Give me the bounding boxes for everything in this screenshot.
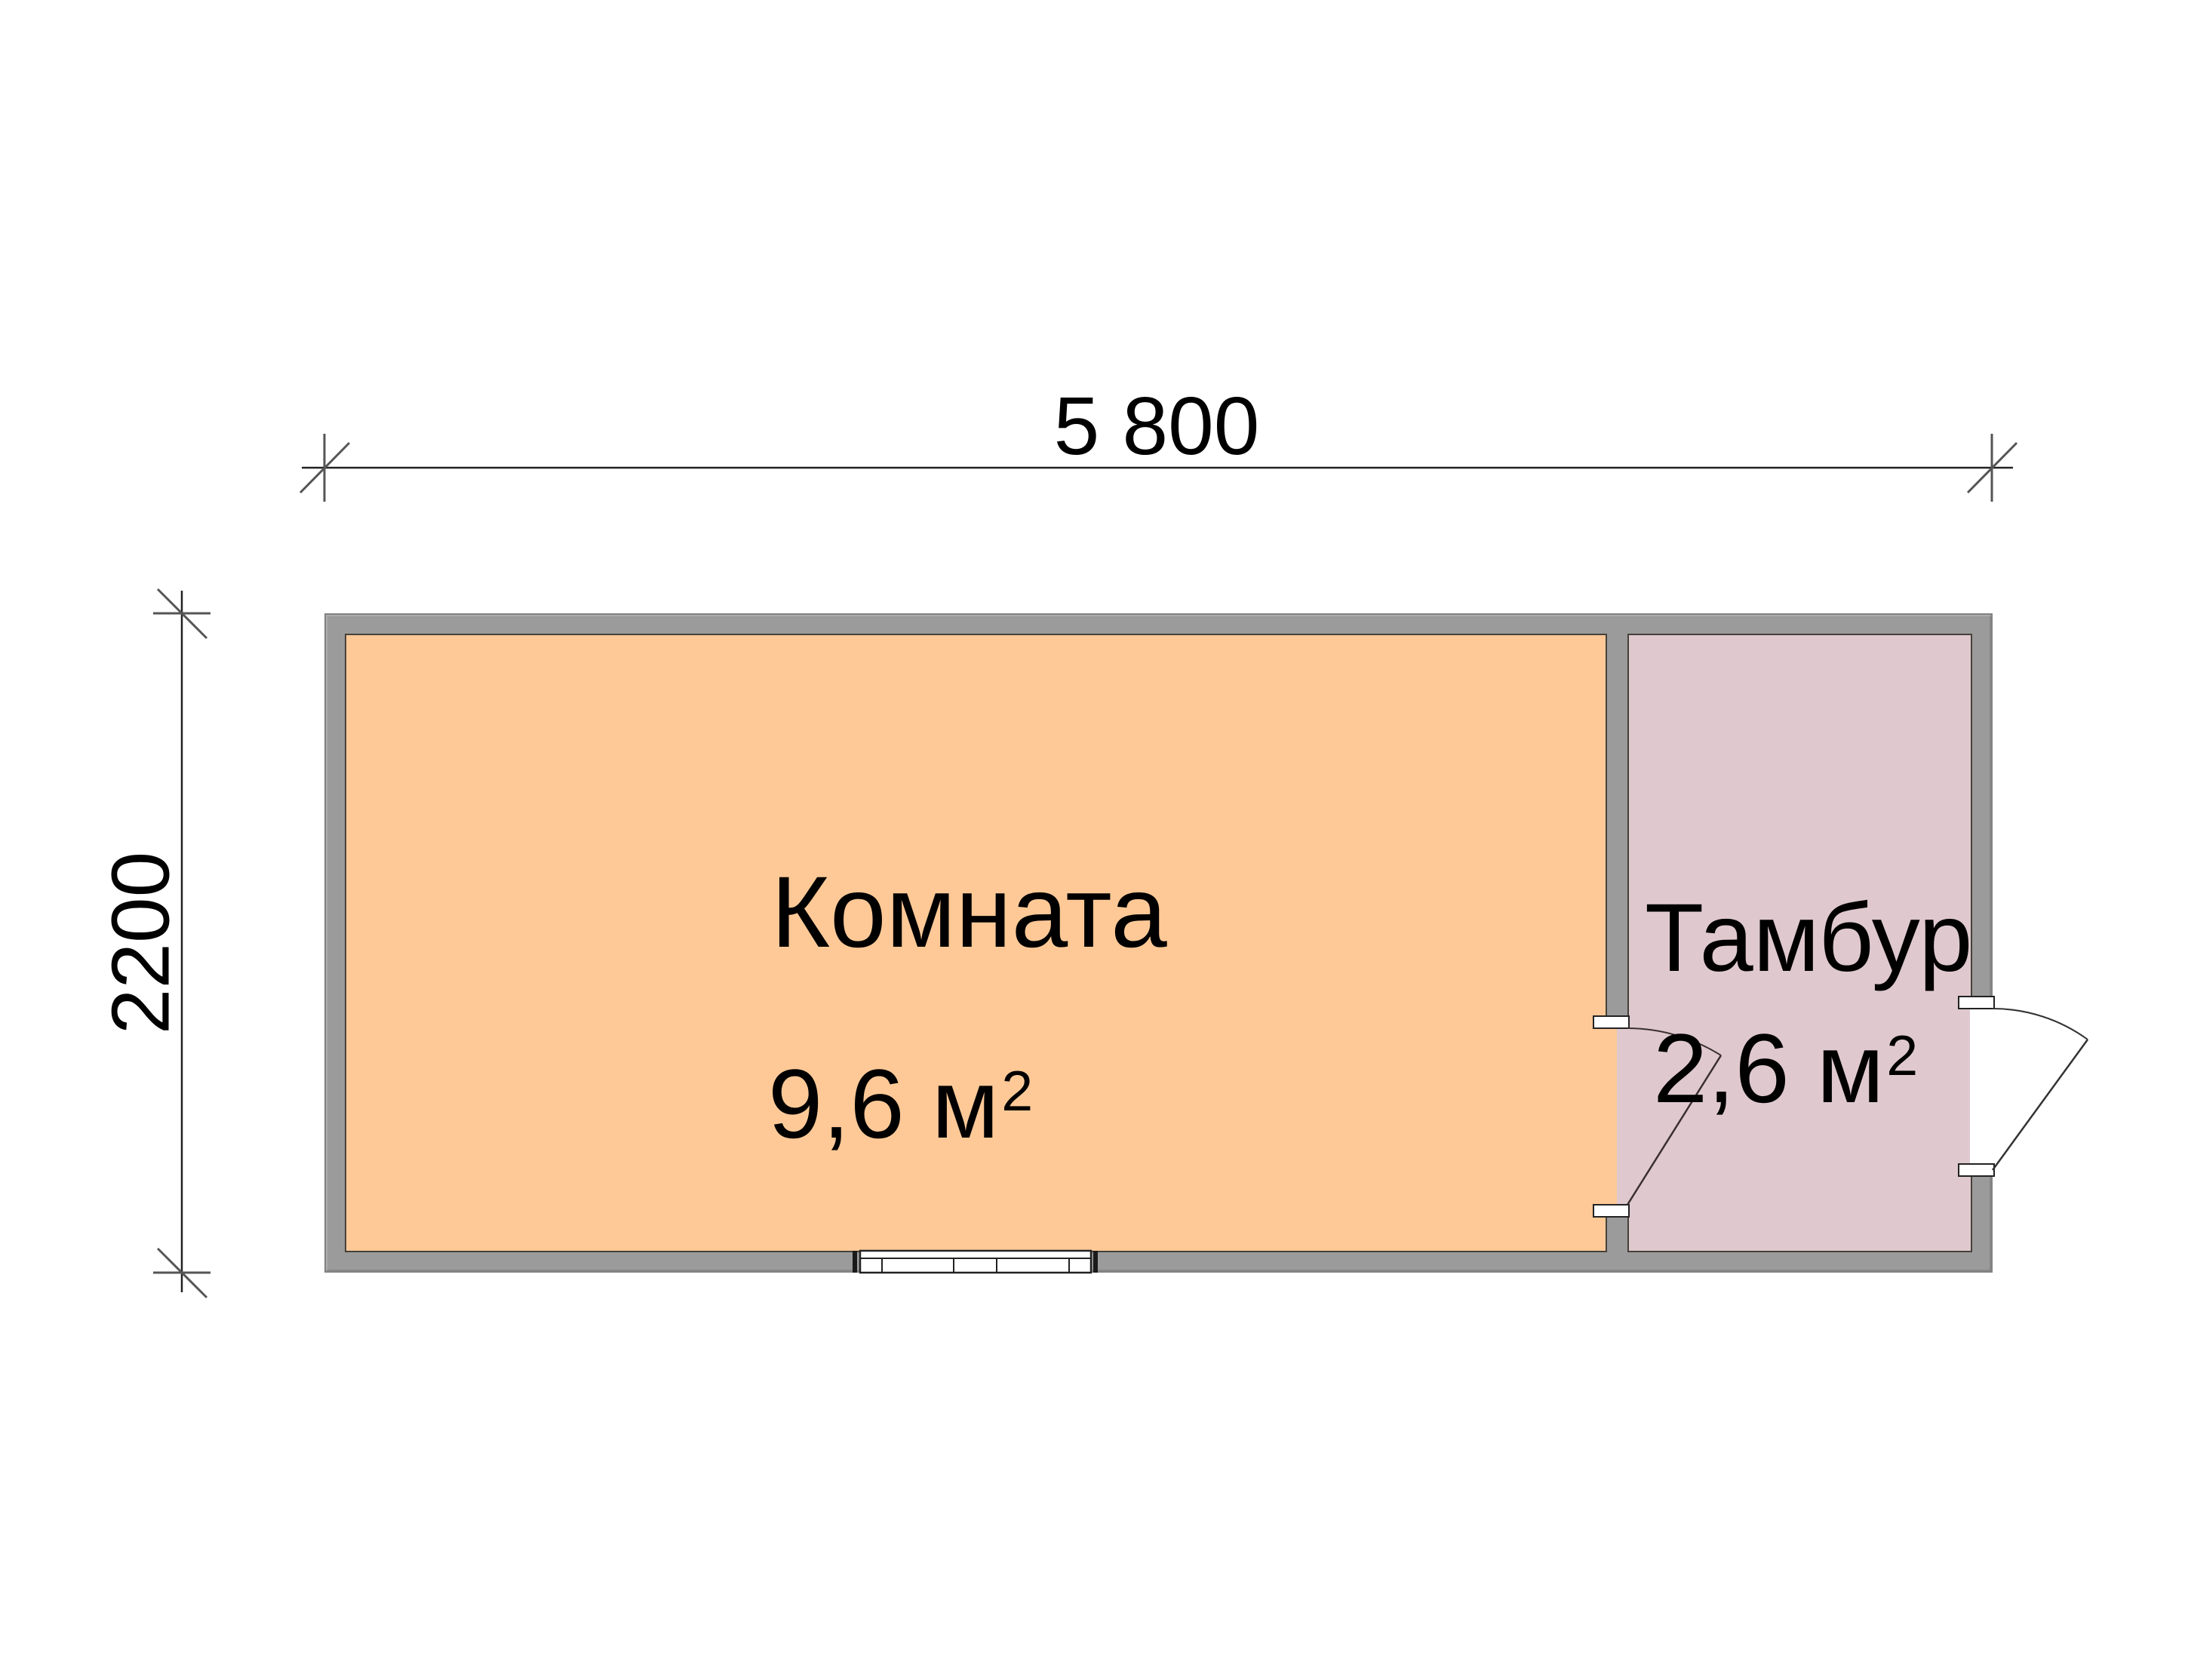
room-vestibule-area-label: 2,6 м2 [1653,1019,1918,1117]
room-living-area-label: 9,6 м2 [768,1055,1033,1153]
room-living-area-value: 9,6 м [768,1049,999,1159]
dim-tick-slash [1968,443,2017,493]
door-leaf [1993,1040,2088,1170]
room-living-area-sup: 2 [1001,1059,1033,1123]
room-living-name-label: Комната [771,862,1167,963]
dimension-label-width: 5 800 [1054,385,1260,468]
door-swing-arc [1993,1009,2088,1040]
floor-plan-page: { "plan": { "dimensions": { "width_label… [0,0,2185,1680]
dimension-label-height: 2200 [100,852,183,1034]
dim-tick-slash [158,1248,207,1298]
room-vestibule-name-label: Тамбур [1645,890,1972,987]
room-vestibule-area-sup: 2 [1886,1024,1918,1087]
room-vestibule-area-value: 2,6 м [1653,1013,1884,1123]
dim-tick-slash [300,443,349,493]
dim-tick-slash [158,589,207,638]
